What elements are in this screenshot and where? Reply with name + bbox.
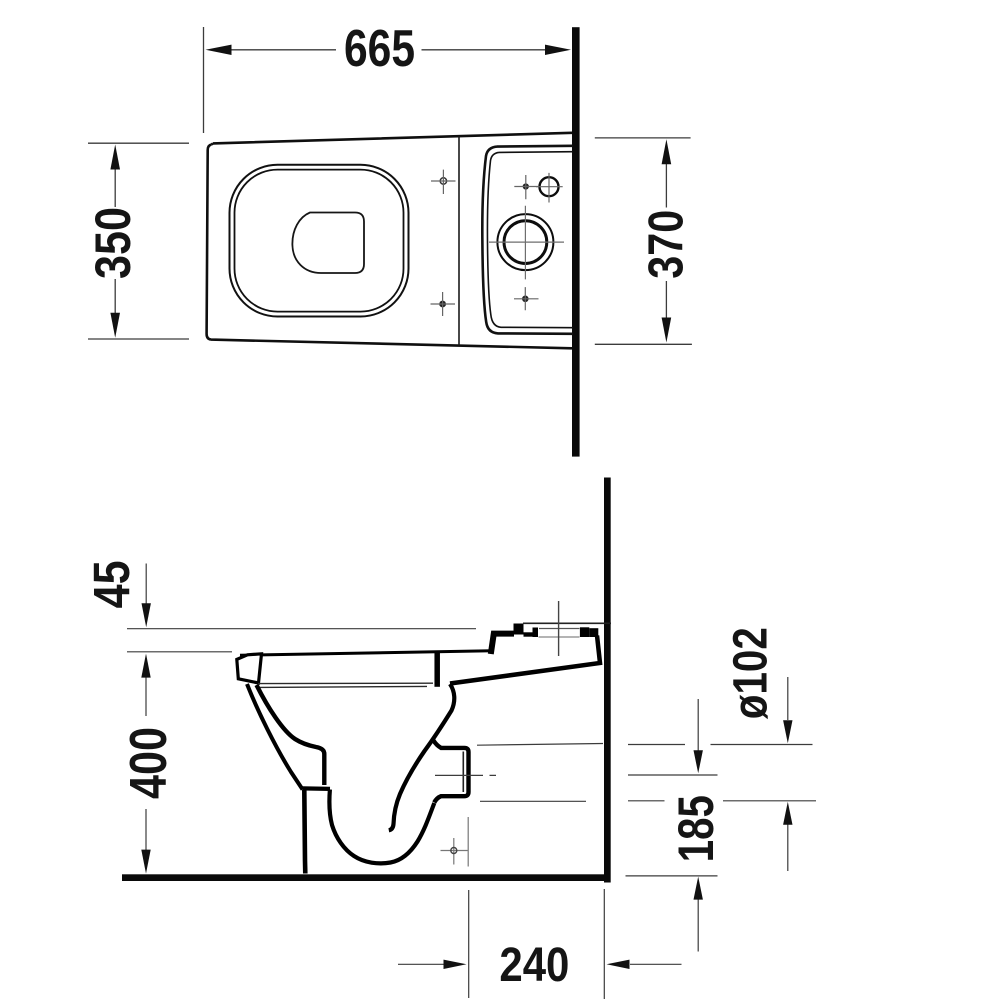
svg-text:400: 400 bbox=[120, 727, 178, 799]
svg-text:370: 370 bbox=[639, 210, 693, 279]
svg-text:185: 185 bbox=[668, 795, 724, 862]
svg-text:665: 665 bbox=[344, 20, 415, 78]
svg-text:240: 240 bbox=[499, 939, 569, 992]
svg-text:45: 45 bbox=[83, 560, 140, 608]
svg-text:350: 350 bbox=[85, 207, 141, 279]
svg-text:ø102: ø102 bbox=[725, 627, 778, 719]
